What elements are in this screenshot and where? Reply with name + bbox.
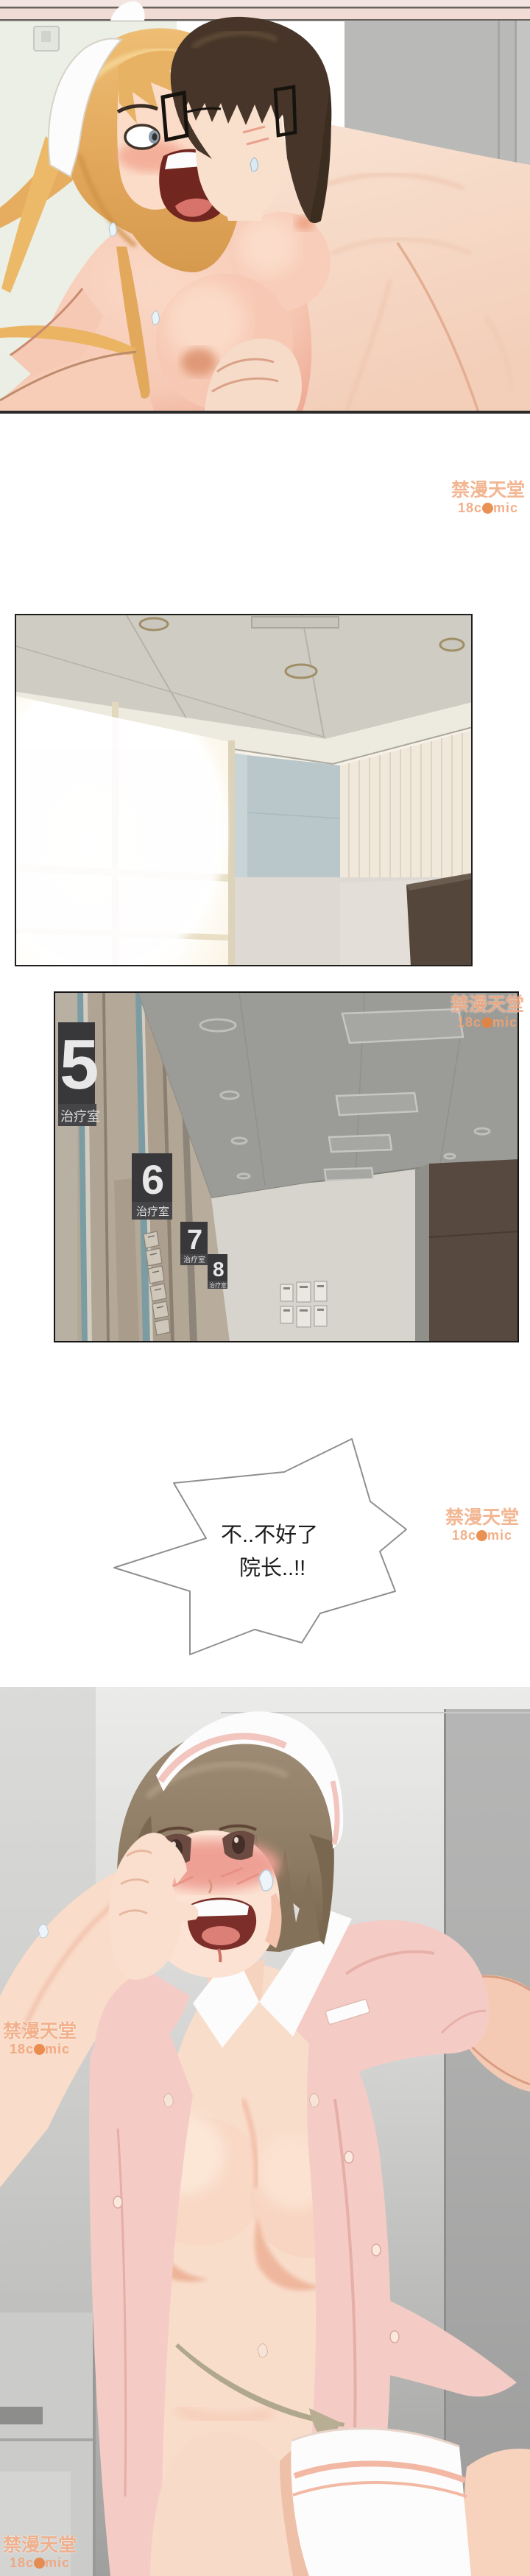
svg-text:院长..!!: 院长..!!	[239, 1556, 305, 1580]
svg-text:不..不好了: 不..不好了	[221, 1523, 318, 1547]
